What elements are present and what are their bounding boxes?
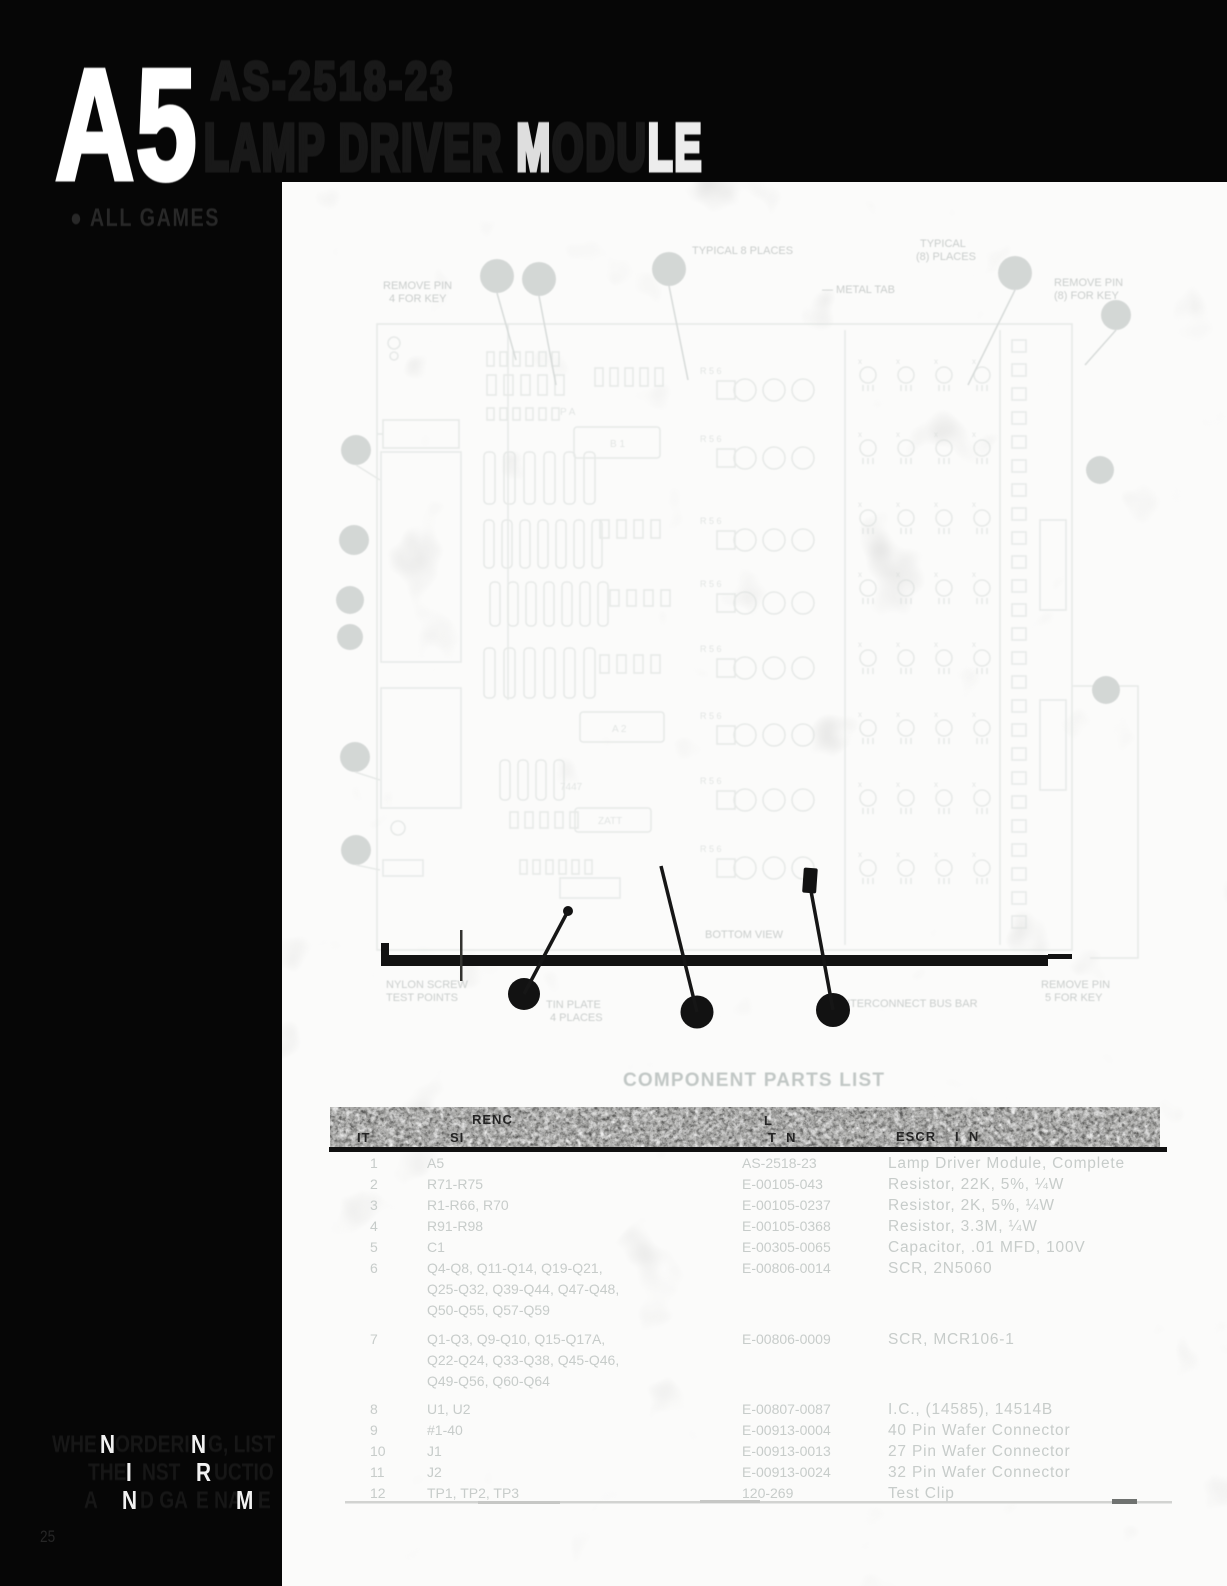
svg-text:BOTTOM VIEW: BOTTOM VIEW xyxy=(705,929,784,941)
svg-text:x: x xyxy=(972,710,976,719)
svg-text:TYPICAL: TYPICAL xyxy=(920,238,966,250)
svg-text:x: x xyxy=(972,780,976,789)
svg-text:REMOVE PIN: REMOVE PIN xyxy=(383,280,452,292)
svg-text:x: x xyxy=(858,500,862,509)
svg-text:ZATT: ZATT xyxy=(598,816,622,827)
svg-text:x: x xyxy=(934,710,938,719)
svg-text:x: x xyxy=(934,570,938,579)
svg-text:x: x xyxy=(896,640,900,649)
svg-text:x: x xyxy=(972,640,976,649)
svg-text:NYLON SCREW: NYLON SCREW xyxy=(386,979,469,991)
svg-text:x: x xyxy=(858,710,862,719)
svg-text:A 2: A 2 xyxy=(612,724,627,735)
svg-text:x: x xyxy=(896,430,900,439)
svg-text:4 FOR KEY: 4 FOR KEY xyxy=(389,293,447,305)
svg-text:x: x xyxy=(896,570,900,579)
svg-text:x: x xyxy=(934,640,938,649)
svg-text:x: x xyxy=(896,780,900,789)
svg-text:— METAL TAB: — METAL TAB xyxy=(822,284,895,296)
svg-text:(8) PLACES: (8) PLACES xyxy=(916,251,976,263)
svg-text:INTERCONNECT BUS BAR: INTERCONNECT BUS BAR xyxy=(839,998,978,1010)
svg-text:R 5 6: R 5 6 xyxy=(700,644,722,654)
svg-text:x: x xyxy=(896,500,900,509)
svg-text:x: x xyxy=(896,357,900,366)
svg-text:x: x xyxy=(934,357,938,366)
svg-text:REMOVE PIN: REMOVE PIN xyxy=(1054,277,1123,289)
svg-text:x: x xyxy=(934,780,938,789)
svg-text:7447: 7447 xyxy=(560,782,583,793)
svg-text:x: x xyxy=(972,500,976,509)
svg-text:x: x xyxy=(896,850,900,859)
svg-text:R 5 6: R 5 6 xyxy=(700,366,722,376)
svg-text:x: x xyxy=(858,357,862,366)
svg-text:TYPICAL 8 PLACES: TYPICAL 8 PLACES xyxy=(692,245,793,257)
svg-text:R 5 6: R 5 6 xyxy=(700,579,722,589)
svg-text:P A: P A xyxy=(560,407,576,418)
svg-text:x: x xyxy=(934,850,938,859)
svg-text:x: x xyxy=(972,850,976,859)
svg-text:x: x xyxy=(972,430,976,439)
svg-text:x: x xyxy=(858,640,862,649)
svg-text:x: x xyxy=(972,357,976,366)
svg-text:TIN PLATE: TIN PLATE xyxy=(546,999,601,1011)
svg-text:R 5 6: R 5 6 xyxy=(700,844,722,854)
svg-text:TEST POINTS: TEST POINTS xyxy=(386,992,458,1004)
svg-text:x: x xyxy=(896,710,900,719)
svg-text:x: x xyxy=(934,500,938,509)
svg-text:4 PLACES: 4 PLACES xyxy=(550,1012,603,1024)
svg-text:(8) FOR KEY: (8) FOR KEY xyxy=(1054,290,1119,302)
svg-text:R 5 6: R 5 6 xyxy=(700,711,722,721)
svg-text:R 5 6: R 5 6 xyxy=(700,434,722,444)
svg-text:x: x xyxy=(858,850,862,859)
svg-text:x: x xyxy=(858,780,862,789)
svg-text:x: x xyxy=(858,430,862,439)
svg-text:x: x xyxy=(972,570,976,579)
svg-text:5 FOR KEY: 5 FOR KEY xyxy=(1045,992,1103,1004)
svg-text:R 5 6: R 5 6 xyxy=(700,516,722,526)
svg-text:REMOVE PIN: REMOVE PIN xyxy=(1041,979,1110,991)
svg-text:B 1: B 1 xyxy=(610,439,625,450)
svg-text:x: x xyxy=(934,430,938,439)
svg-text:x: x xyxy=(858,570,862,579)
svg-text:R 5 6: R 5 6 xyxy=(700,776,722,786)
